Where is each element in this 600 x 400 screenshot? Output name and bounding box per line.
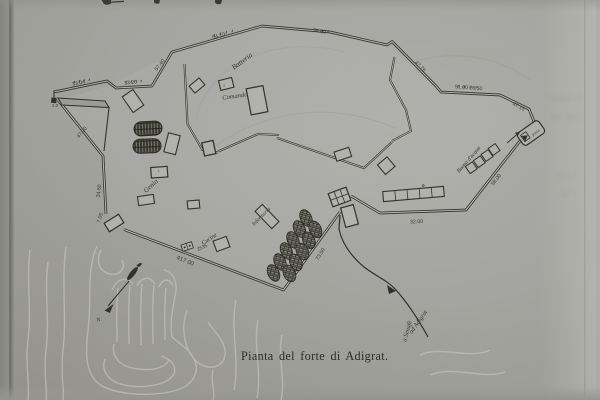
svg-text:mita d: mita d	[548, 90, 581, 105]
svg-text:te del: te del	[552, 108, 581, 123]
svg-text:2.0: 2.0	[52, 103, 59, 108]
svg-text:ossa alla som: ossa alla som	[442, 47, 507, 61]
svg-text:32.00: 32.00	[410, 219, 423, 226]
svg-text:on l: on l	[558, 167, 577, 181]
svg-text:Pianta del forte di Adigrat.: Pianta del forte di Adigrat.	[241, 349, 388, 363]
svg-text:1: 1	[223, 83, 225, 88]
svg-text:di f: di f	[560, 187, 576, 201]
